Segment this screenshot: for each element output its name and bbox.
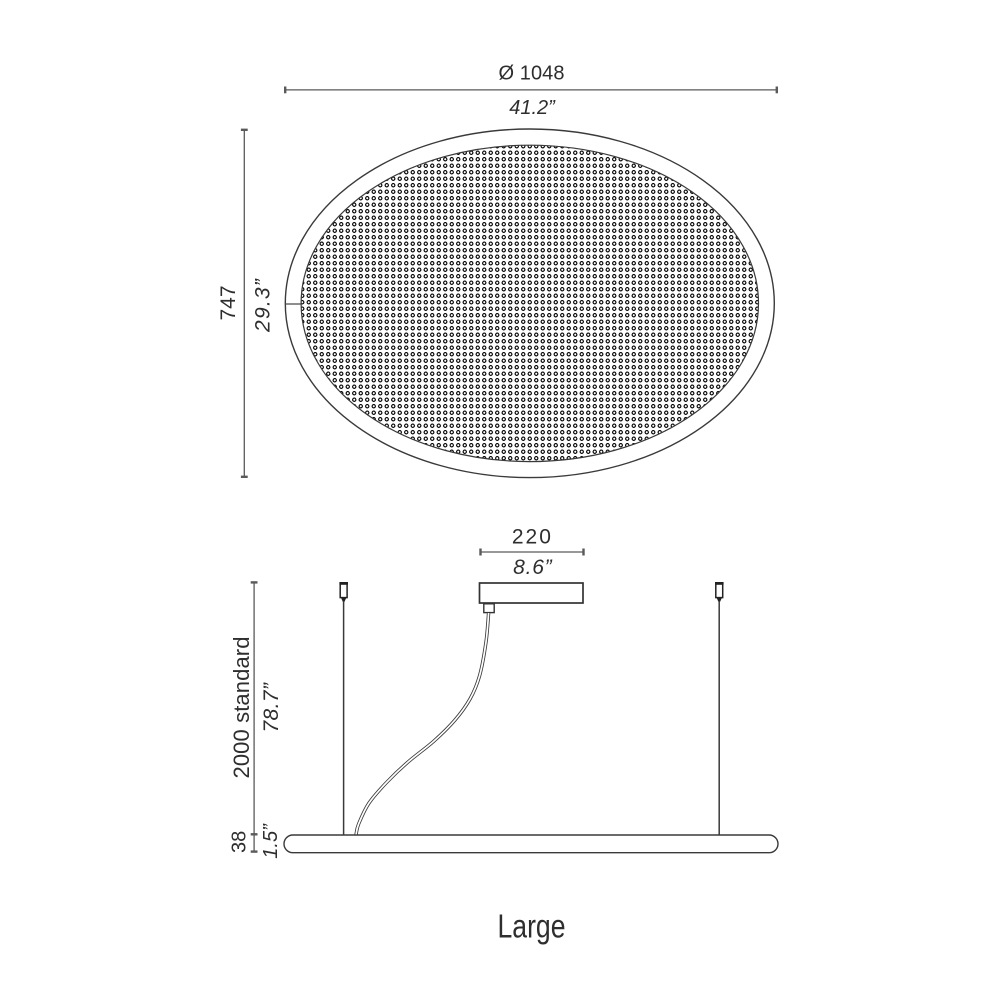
svg-text:29.3”: 29.3” bbox=[252, 278, 275, 333]
svg-text:2000 standard: 2000 standard bbox=[229, 637, 254, 779]
svg-text:220: 220 bbox=[512, 525, 551, 548]
svg-text:Large: Large bbox=[498, 907, 566, 944]
svg-text:1.5”: 1.5” bbox=[260, 823, 282, 859]
svg-text:38: 38 bbox=[229, 831, 251, 853]
svg-text:78.7”: 78.7” bbox=[260, 682, 283, 732]
svg-text:41.2”: 41.2” bbox=[509, 97, 556, 119]
svg-text:Ø 1048: Ø 1048 bbox=[499, 62, 565, 84]
svg-text:8.6”: 8.6” bbox=[513, 556, 553, 579]
svg-text:747: 747 bbox=[217, 285, 240, 320]
